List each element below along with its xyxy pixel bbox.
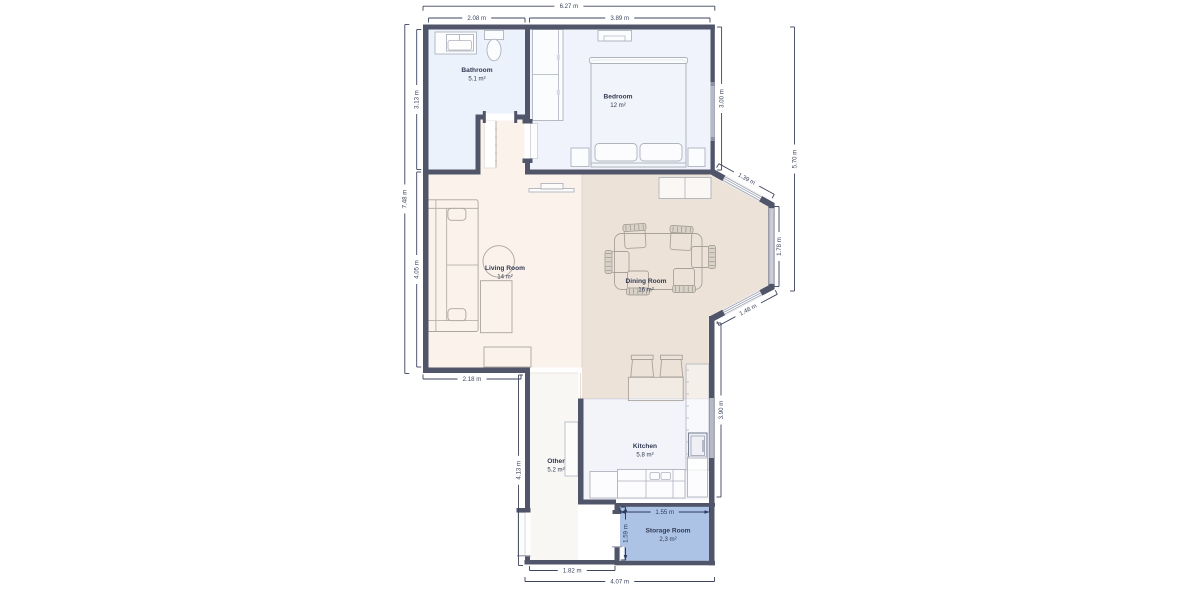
svg-text:Storage Room: Storage Room xyxy=(645,527,690,534)
svg-text:2,3 m²: 2,3 m² xyxy=(659,536,676,543)
svg-text:6.27 m: 6.27 m xyxy=(560,3,579,10)
svg-text:Bedroom: Bedroom xyxy=(604,93,633,100)
svg-text:5.1 m²: 5.1 m² xyxy=(468,76,485,83)
svg-text:3.00 m: 3.00 m xyxy=(719,89,726,108)
svg-text:1.55 m: 1.55 m xyxy=(655,509,674,516)
svg-text:Kitchen: Kitchen xyxy=(633,443,657,450)
svg-text:2.08 m: 2.08 m xyxy=(467,15,486,22)
svg-text:16 m²: 16 m² xyxy=(638,287,654,294)
svg-text:5.70 m: 5.70 m xyxy=(791,150,798,169)
svg-text:Dining Room: Dining Room xyxy=(625,278,666,285)
svg-text:5.2 m²: 5.2 m² xyxy=(547,467,564,474)
svg-text:5.8 m²: 5.8 m² xyxy=(636,452,653,459)
svg-text:1.82 m: 1.82 m xyxy=(563,567,582,574)
svg-text:4.05 m: 4.05 m xyxy=(414,260,421,279)
svg-text:4.13 m: 4.13 m xyxy=(515,461,522,480)
svg-text:3.89 m: 3.89 m xyxy=(610,15,629,22)
svg-text:1.78 m: 1.78 m xyxy=(776,237,783,256)
svg-text:14 m²: 14 m² xyxy=(497,274,513,281)
svg-text:2.18 m: 2.18 m xyxy=(463,376,482,383)
svg-text:Living Room: Living Room xyxy=(485,265,525,272)
svg-text:7.48 m: 7.48 m xyxy=(402,190,409,209)
svg-text:1.59 m: 1.59 m xyxy=(622,524,629,543)
svg-text:4.07 m: 4.07 m xyxy=(610,578,629,585)
svg-text:Other: Other xyxy=(547,458,565,465)
svg-text:3.90 m: 3.90 m xyxy=(718,401,725,420)
svg-text:12 m²: 12 m² xyxy=(610,102,626,109)
svg-text:3.13 m: 3.13 m xyxy=(414,90,421,109)
svg-text:Bathroom: Bathroom xyxy=(461,67,492,74)
